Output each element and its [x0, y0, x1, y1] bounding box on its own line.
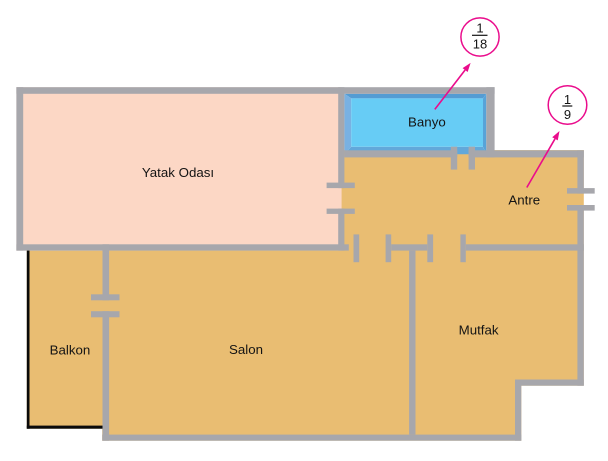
svg-text:Salon: Salon	[229, 342, 263, 357]
svg-text:Balkon: Balkon	[50, 342, 91, 357]
svg-text:Antre: Antre	[508, 193, 540, 208]
svg-text:Yatak Odası: Yatak Odası	[142, 165, 214, 180]
svg-text:Banyo: Banyo	[408, 115, 446, 130]
svg-text:Mutfak: Mutfak	[459, 322, 499, 337]
svg-text:1: 1	[476, 20, 483, 35]
svg-text:18: 18	[473, 36, 487, 51]
svg-text:9: 9	[564, 107, 571, 122]
svg-text:1: 1	[564, 92, 571, 107]
